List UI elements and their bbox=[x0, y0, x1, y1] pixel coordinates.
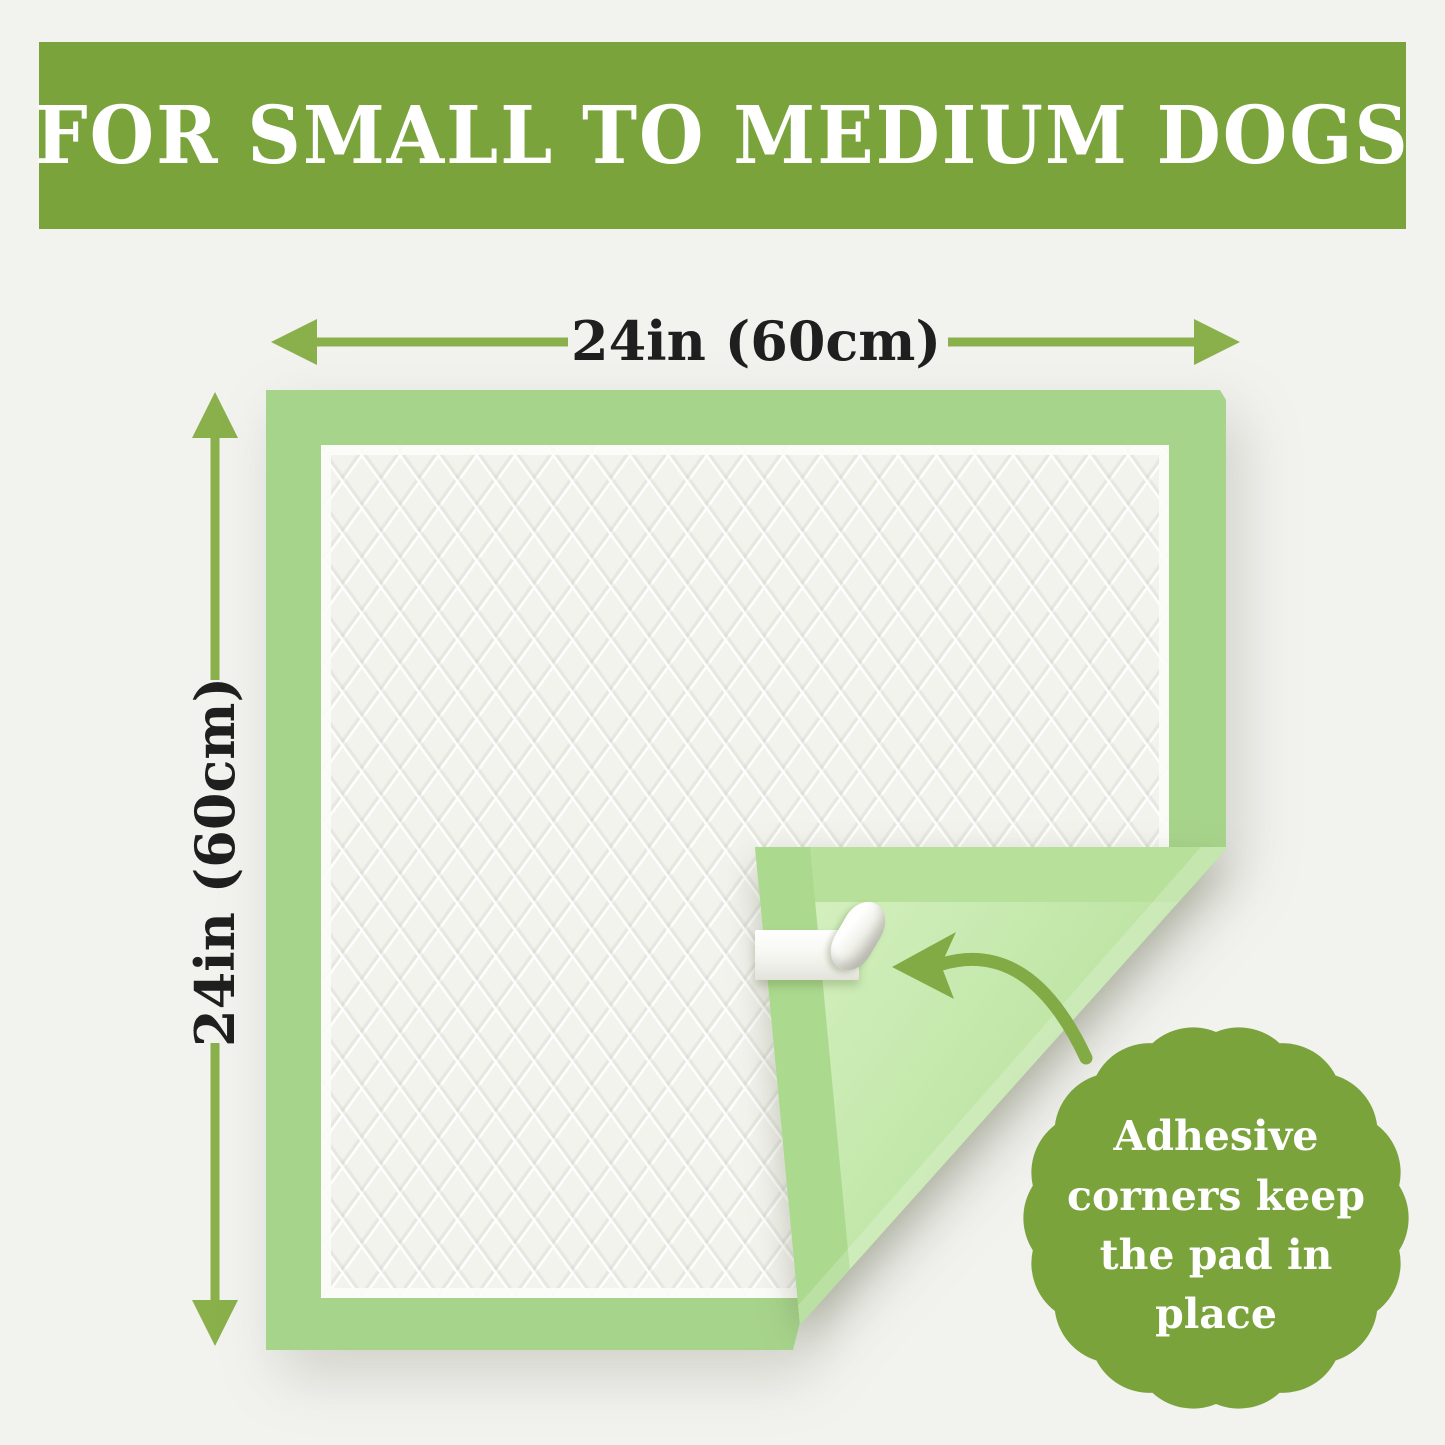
badge-line: corners keep bbox=[1067, 1167, 1365, 1226]
fold-top-border bbox=[755, 847, 1228, 902]
badge-line: place bbox=[1155, 1285, 1277, 1344]
page-background: { "banner": { "text": "FOR SMALL TO MEDI… bbox=[0, 0, 1445, 1445]
adhesive-badge: Adhesive corners keep the pad in place bbox=[1006, 1008, 1426, 1428]
badge-text: Adhesive corners keep the pad in place bbox=[1006, 1008, 1426, 1428]
badge-line: Adhesive bbox=[1114, 1107, 1319, 1166]
badge-line: the pad in bbox=[1100, 1226, 1333, 1285]
